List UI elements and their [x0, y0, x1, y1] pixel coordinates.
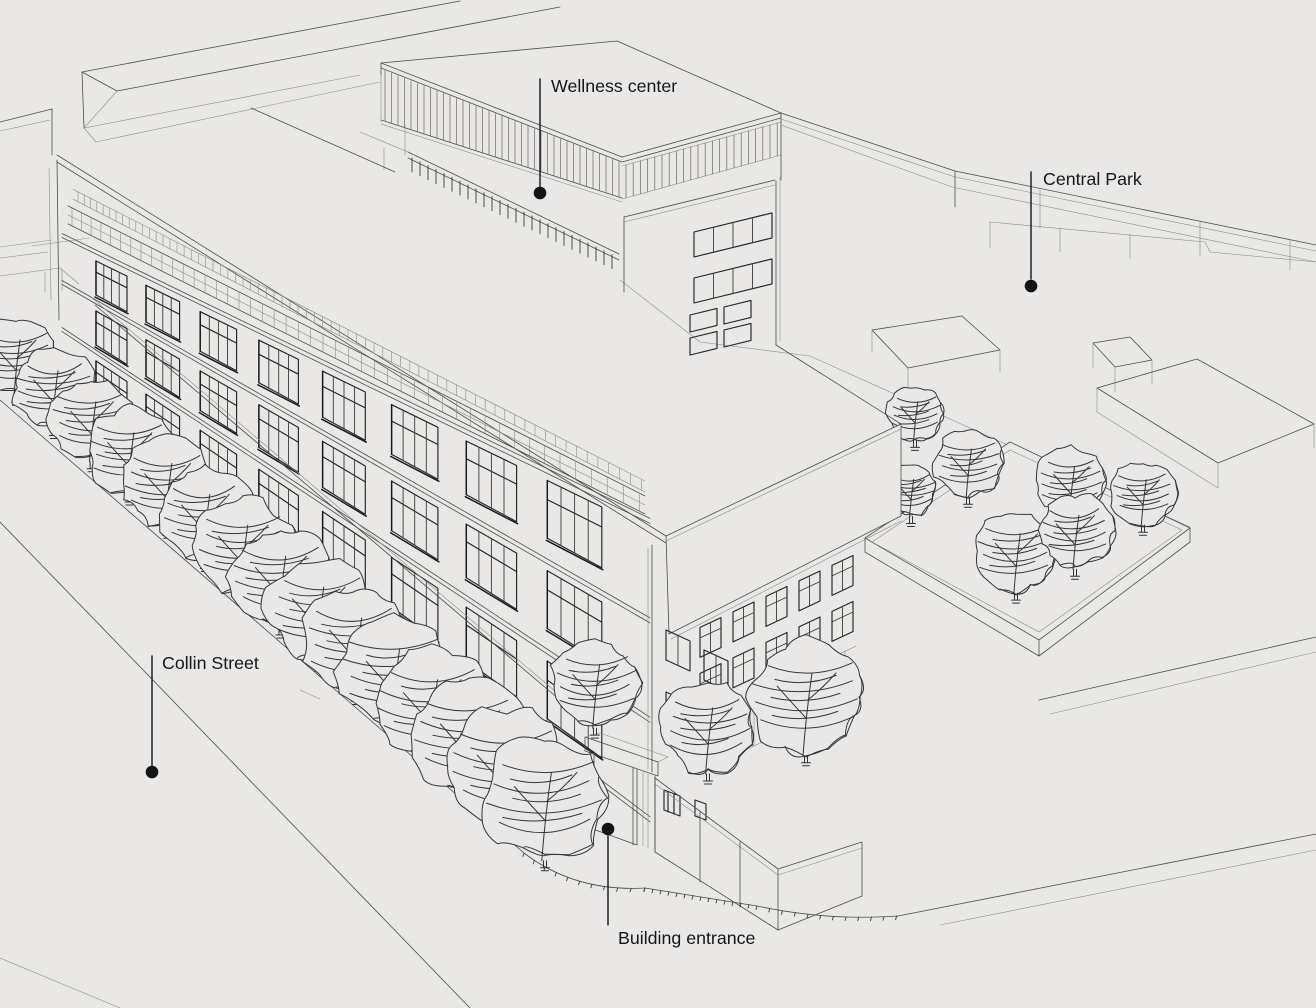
svg-text:Central Park: Central Park: [1043, 169, 1142, 189]
svg-text:Building entrance: Building entrance: [618, 928, 756, 948]
svg-text:Wellness center: Wellness center: [551, 76, 677, 96]
svg-text:Collin Street: Collin Street: [162, 653, 259, 673]
